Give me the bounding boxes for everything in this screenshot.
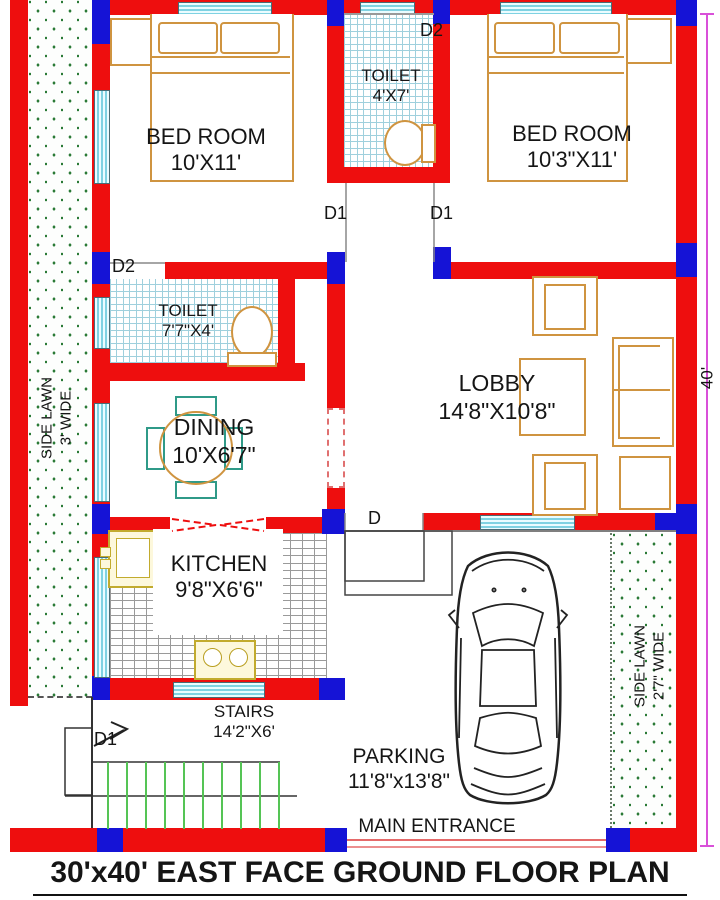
column (655, 513, 677, 530)
toilet-tank (227, 352, 277, 367)
plan-title: 30'x40' EAST FACE GROUND FLOOR PLAN (50, 855, 669, 891)
lobby-side-table (619, 456, 671, 510)
room-size: 10'3"X11' (512, 147, 632, 173)
room-label-toilet-mid: TOILET 7'7"X4' (158, 301, 217, 342)
room-name: LOBBY (438, 370, 555, 398)
room-size: 11'8"x13'8" (348, 769, 450, 794)
side-lawn-right-label: SIDE LAWN 2'7" WIDE (631, 625, 669, 707)
wall-bedroom-left-bottom (165, 262, 345, 279)
dimension-tick (700, 845, 714, 847)
window-bedroom-left-side (94, 90, 110, 184)
column (327, 252, 345, 284)
column (97, 828, 123, 852)
kitchen-faucet (100, 547, 111, 557)
dimension-tick (700, 13, 714, 15)
column (319, 678, 345, 700)
wall-right-outer (676, 0, 697, 852)
room-size: 4'X7' (361, 86, 420, 106)
column (92, 0, 110, 44)
window-kitchen-bottom (173, 682, 265, 698)
stove-burner (229, 648, 248, 667)
lawn-line2: 2'7" WIDE (650, 625, 669, 707)
floor-plan: BED ROOM 10'X11' BED ROOM 10'3"X11' TOIL… (0, 0, 720, 900)
lobby-armchair-seat (544, 462, 586, 510)
wall-bottom-right (628, 828, 697, 852)
room-label-toilet-top: TOILET 4'X7' (361, 66, 420, 107)
toilet-bowl (384, 120, 426, 166)
room-label-parking: PARKING 11'8"x13'8" (348, 744, 450, 794)
dimension-40ft-label: 40' (696, 367, 717, 389)
wall-bottom-left (10, 828, 327, 852)
column (676, 504, 697, 534)
column (676, 243, 697, 277)
lobby-armchair-seat (544, 284, 586, 330)
stove-burner (203, 648, 222, 667)
column (606, 828, 630, 852)
column (322, 509, 345, 534)
title-underline (33, 894, 687, 896)
lawn-line2: 3' WIDE (57, 377, 76, 459)
room-name: BED ROOM (512, 121, 632, 147)
toilet-tank (421, 124, 436, 163)
room-name: PARKING (348, 744, 450, 769)
bed-fold-line (487, 56, 624, 74)
side-lawn-left-area (28, 0, 92, 698)
door-label-d1-bedroom-right: D1 (430, 203, 453, 224)
bedside-table (110, 18, 154, 66)
room-label-kitchen: KITCHEN 9'8"X6'6" (171, 551, 268, 604)
lobby-sofa-divider (612, 389, 670, 391)
room-name: KITCHEN (171, 551, 268, 577)
room-size: 14'2"X6' (213, 722, 275, 742)
column (327, 0, 344, 26)
room-size: 9'8"X6'6" (171, 577, 268, 603)
column (676, 0, 697, 26)
pillow (220, 22, 280, 54)
door-label-d2-toilet-top: D2 (420, 20, 443, 41)
wall-toilet-top-bottom (327, 167, 450, 183)
room-label-bedroom-right: BED ROOM 10'3"X11' (512, 121, 632, 174)
kitchen-sink-basin (116, 538, 150, 578)
room-size: 7'7"X4' (158, 321, 217, 341)
column (433, 247, 451, 279)
lobby-sofa-seat (618, 345, 660, 439)
room-label-bedroom-left: BED ROOM 10'X11' (146, 124, 266, 177)
pillow (559, 22, 620, 54)
room-label-stairs: STAIRS 14'2"X6' (213, 702, 275, 743)
room-name: DINING (172, 414, 255, 442)
room-name: TOILET (361, 66, 420, 86)
window-lobby-bottom (480, 515, 575, 530)
toilet-bowl (231, 306, 273, 358)
window-dining-side-upper (94, 297, 110, 349)
door-label-d-lobby: D (368, 508, 381, 529)
window-toilet-top (360, 2, 415, 15)
pillow (494, 22, 555, 54)
wall-lobby-left (327, 279, 345, 530)
car-icon (449, 553, 567, 804)
door-label-d2-toilet-mid: D2 (112, 256, 135, 277)
column (325, 828, 347, 852)
main-entrance-label: MAIN ENTRANCE (358, 816, 515, 839)
window-dining-side-lower (94, 403, 110, 502)
dimension-line-40ft (706, 14, 708, 847)
bed-fold-line (150, 56, 290, 74)
wall-toilet-top-left (327, 14, 344, 168)
lawn-line1: SIDE LAWN (38, 377, 57, 459)
room-name: BED ROOM (146, 124, 266, 150)
room-size: 10'X11' (146, 150, 266, 176)
kitchen-faucet (100, 559, 111, 569)
column (92, 252, 110, 284)
wall-left-outer (10, 0, 28, 706)
room-label-dining: DINING 10'X6'7" (172, 414, 255, 469)
pillow (158, 22, 218, 54)
column (92, 676, 110, 700)
door-label-d1-bedroom-left: D1 (324, 203, 347, 224)
bedside-table (626, 18, 672, 64)
room-label-lobby: LOBBY 14'8"X10'8" (438, 370, 555, 425)
room-name: TOILET (158, 301, 217, 321)
room-name: STAIRS (213, 702, 275, 722)
lawn-line1: SIDE LAWN (631, 625, 650, 707)
door-label-d1-stairs: D1 (94, 729, 117, 750)
door-opening-lobby-left (327, 408, 345, 488)
room-size: 14'8"X10'8" (438, 398, 555, 426)
side-lawn-left-label: SIDE LAWN 3' WIDE (38, 377, 76, 459)
room-size: 10'X6'7" (172, 442, 255, 470)
